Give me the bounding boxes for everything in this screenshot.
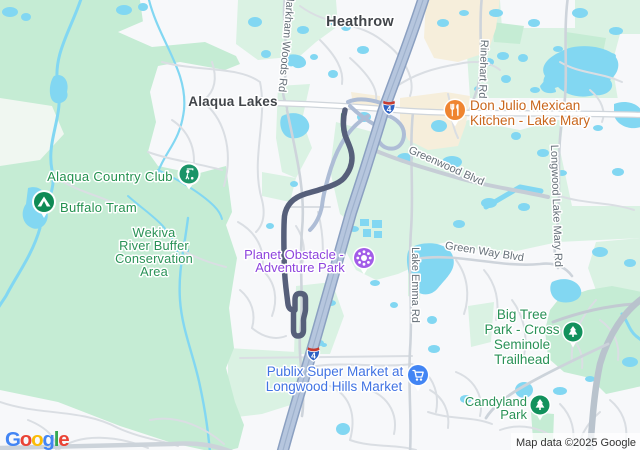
- svg-text:Kitchen - Lake Mary: Kitchen - Lake Mary: [470, 113, 590, 128]
- svg-text:Big Tree: Big Tree: [497, 307, 547, 322]
- svg-text:Publix Super Market at: Publix Super Market at: [267, 364, 404, 379]
- svg-text:Area: Area: [140, 264, 169, 279]
- svg-text:Heathrow: Heathrow: [326, 14, 394, 30]
- svg-text:Google: Google: [5, 428, 69, 450]
- svg-text:Alaqua Country Club: Alaqua Country Club: [47, 169, 173, 184]
- svg-text:Seminole: Seminole: [494, 337, 550, 352]
- svg-text:Adventure Park: Adventure Park: [255, 260, 345, 275]
- svg-text:Map data ©2025 Google: Map data ©2025 Google: [516, 437, 636, 449]
- svg-text:Park: Park: [500, 407, 527, 422]
- svg-text:Buffalo Tram: Buffalo Tram: [60, 200, 137, 215]
- svg-text:Lake Emma Rd: Lake Emma Rd: [409, 247, 421, 323]
- svg-text:Rinehart Rd: Rinehart Rd: [476, 40, 490, 99]
- svg-text:4: 4: [311, 351, 316, 361]
- svg-text:4: 4: [387, 104, 392, 114]
- svg-text:Longwood Hills Market: Longwood Hills Market: [266, 379, 403, 394]
- svg-text:Don Julio Mexican: Don Julio Mexican: [470, 98, 580, 113]
- svg-text:Alaqua Lakes: Alaqua Lakes: [188, 94, 277, 109]
- svg-text:Park - Cross: Park - Cross: [484, 322, 559, 337]
- svg-text:Trailhead: Trailhead: [494, 352, 550, 367]
